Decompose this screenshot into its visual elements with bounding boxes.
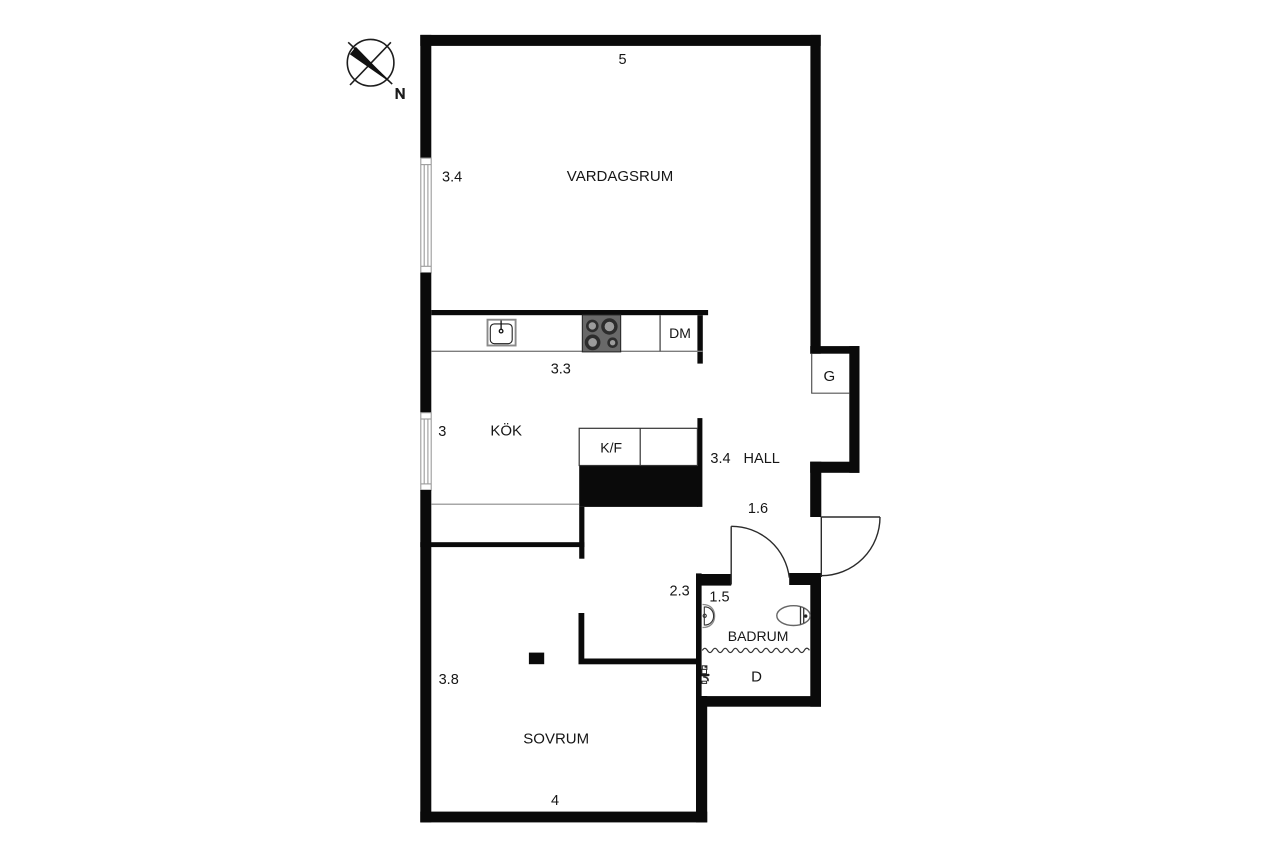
svg-text:3: 3 bbox=[438, 424, 446, 440]
svg-text:VARDAGSRUM: VARDAGSRUM bbox=[567, 168, 673, 185]
svg-text:G: G bbox=[823, 368, 835, 385]
svg-text:3.3: 3.3 bbox=[551, 362, 571, 378]
svg-text:1.5: 1.5 bbox=[709, 589, 729, 605]
svg-text:2.3: 2.3 bbox=[670, 583, 690, 599]
svg-text:KÖK: KÖK bbox=[490, 422, 522, 440]
svg-text:HALL: HALL bbox=[744, 451, 780, 467]
svg-text:1.6: 1.6 bbox=[748, 501, 768, 517]
svg-text:DM: DM bbox=[669, 325, 691, 341]
svg-text:K/F: K/F bbox=[600, 440, 622, 456]
svg-text:N: N bbox=[395, 87, 405, 103]
svg-text:5: 5 bbox=[619, 52, 627, 68]
svg-text:D: D bbox=[751, 669, 762, 686]
svg-text:3.4: 3.4 bbox=[710, 451, 730, 467]
svg-text:SOVRUM: SOVRUM bbox=[523, 730, 589, 747]
svg-text:4: 4 bbox=[551, 793, 559, 809]
svg-text:BADRUM: BADRUM bbox=[728, 628, 789, 644]
svg-text:3.8: 3.8 bbox=[439, 672, 459, 688]
svg-text:3.4: 3.4 bbox=[442, 170, 462, 186]
